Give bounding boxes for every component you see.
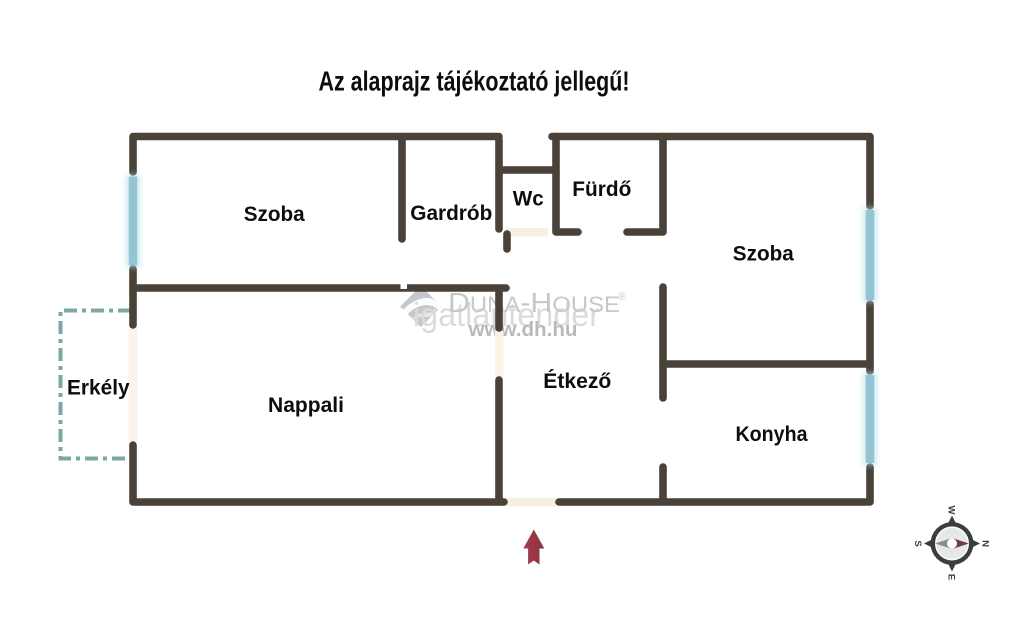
svg-text:S: S xyxy=(912,540,923,546)
svg-text:Étkező: Étkező xyxy=(543,368,611,393)
svg-text:Szoba: Szoba xyxy=(733,241,795,265)
svg-text:W: W xyxy=(946,506,957,515)
svg-text:Az alaprajz tájékoztató jelleg: Az alaprajz tájékoztató jellegű! xyxy=(319,66,630,97)
svg-text:N: N xyxy=(980,540,991,547)
svg-text:Gardrób: Gardrób xyxy=(410,201,492,225)
svg-text:Fürdő: Fürdő xyxy=(572,177,631,201)
svg-text:Erkély: Erkély xyxy=(67,376,130,400)
svg-text:Nappali: Nappali xyxy=(268,393,344,417)
svg-text:www.dh.hu: www.dh.hu xyxy=(467,319,577,341)
svg-text:Szoba: Szoba xyxy=(244,202,306,226)
svg-text:Konyha: Konyha xyxy=(736,422,809,446)
svg-text:E: E xyxy=(946,574,957,580)
svg-text:®: ® xyxy=(618,291,626,303)
svg-text:Wc: Wc xyxy=(513,187,544,211)
